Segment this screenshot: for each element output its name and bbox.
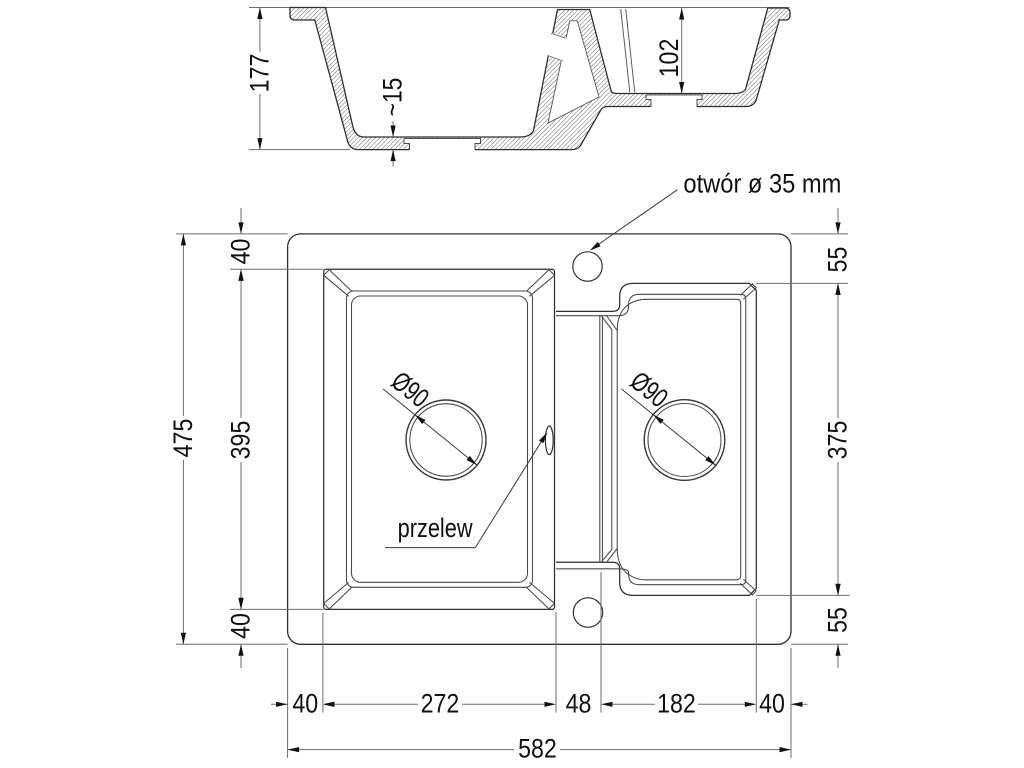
svg-text:395: 395 [225, 421, 255, 460]
svg-text:40: 40 [292, 688, 318, 718]
svg-text:375: 375 [822, 421, 852, 460]
svg-text:przelew: przelew [398, 513, 473, 543]
svg-text:55: 55 [822, 247, 852, 273]
svg-text:182: 182 [657, 688, 696, 718]
svg-text:40: 40 [225, 613, 255, 639]
svg-text:40: 40 [759, 688, 785, 718]
svg-text:~15: ~15 [378, 78, 408, 117]
svg-text:55: 55 [822, 607, 852, 633]
svg-text:582: 582 [518, 734, 557, 764]
svg-text:48: 48 [566, 688, 592, 718]
svg-text:102: 102 [654, 39, 684, 78]
svg-text:40: 40 [225, 239, 255, 265]
svg-text:177: 177 [244, 54, 274, 93]
svg-text:otwór ø 35 mm: otwór ø 35 mm [683, 168, 841, 198]
svg-text:272: 272 [421, 688, 460, 718]
svg-text:475: 475 [168, 419, 198, 458]
